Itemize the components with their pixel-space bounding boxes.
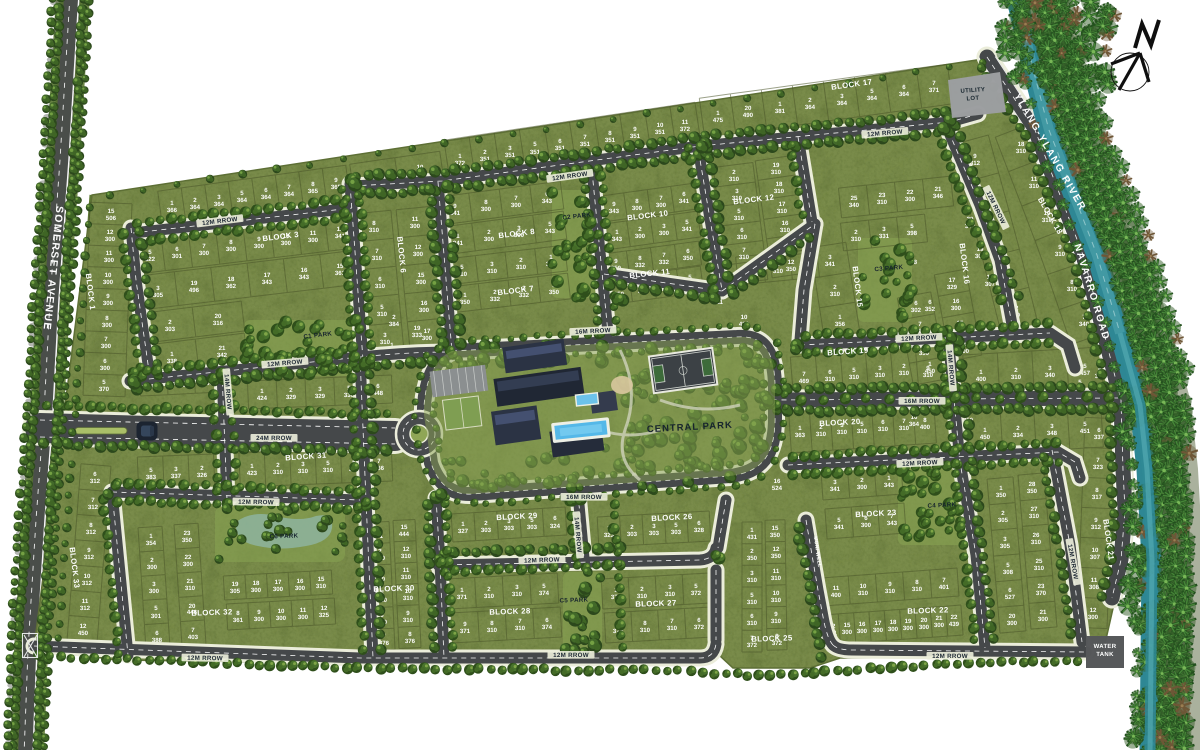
- svg-text:352: 352: [925, 306, 936, 313]
- svg-text:19: 19: [191, 280, 198, 287]
- svg-text:17: 17: [275, 579, 282, 586]
- svg-text:11: 11: [412, 216, 419, 223]
- svg-text:23: 23: [1038, 583, 1045, 590]
- svg-text:310: 310: [512, 591, 523, 598]
- svg-text:350: 350: [549, 289, 560, 296]
- svg-text:11: 11: [403, 567, 410, 574]
- svg-text:310: 310: [323, 467, 334, 474]
- svg-text:527: 527: [1005, 594, 1016, 601]
- svg-text:20: 20: [921, 617, 928, 624]
- svg-text:303: 303: [671, 529, 682, 536]
- svg-text:17: 17: [875, 620, 882, 627]
- svg-text:310: 310: [1031, 539, 1042, 546]
- svg-text:310: 310: [825, 376, 836, 383]
- svg-text:310: 310: [875, 372, 886, 379]
- svg-text:11: 11: [682, 119, 689, 126]
- svg-text:343: 343: [262, 279, 273, 286]
- svg-text:15: 15: [318, 576, 325, 583]
- svg-text:16: 16: [421, 300, 428, 307]
- svg-text:310: 310: [375, 283, 386, 290]
- svg-text:310: 310: [516, 264, 527, 271]
- svg-text:310: 310: [369, 227, 380, 234]
- svg-text:475: 475: [713, 117, 724, 124]
- svg-text:300: 300: [281, 240, 292, 247]
- svg-text:21: 21: [1040, 609, 1047, 616]
- svg-text:310: 310: [851, 236, 862, 243]
- svg-text:12: 12: [107, 229, 114, 236]
- svg-text:22: 22: [185, 554, 192, 561]
- svg-text:BLOCK 25: BLOCK 25: [751, 633, 793, 643]
- svg-text:12M RROW: 12M RROW: [553, 652, 589, 659]
- svg-text:11: 11: [833, 585, 840, 592]
- svg-text:BLOCK 27: BLOCK 27: [635, 598, 677, 608]
- svg-text:20: 20: [215, 313, 222, 320]
- svg-text:312: 312: [86, 529, 97, 536]
- svg-text:300: 300: [903, 625, 914, 632]
- svg-text:303: 303: [481, 527, 492, 534]
- svg-text:401: 401: [939, 584, 950, 591]
- svg-text:376: 376: [405, 638, 416, 645]
- svg-text:300: 300: [295, 585, 306, 592]
- svg-text:337: 337: [1094, 434, 1105, 441]
- svg-text:300: 300: [199, 250, 210, 257]
- svg-text:332: 332: [659, 259, 670, 266]
- svg-text:300: 300: [183, 561, 194, 568]
- svg-text:300: 300: [102, 322, 113, 329]
- svg-text:21: 21: [935, 186, 942, 193]
- svg-text:15: 15: [108, 208, 115, 215]
- svg-text:371: 371: [457, 594, 468, 601]
- svg-text:317: 317: [1092, 494, 1103, 501]
- svg-text:310: 310: [877, 199, 888, 206]
- svg-text:356: 356: [835, 321, 846, 328]
- svg-text:354: 354: [146, 540, 157, 547]
- svg-text:300: 300: [873, 627, 884, 634]
- svg-text:12M RROW: 12M RROW: [238, 499, 274, 507]
- svg-text:364: 364: [261, 194, 272, 201]
- svg-text:310: 310: [1011, 374, 1022, 381]
- svg-text:374: 374: [542, 624, 553, 631]
- svg-text:10: 10: [84, 573, 91, 580]
- svg-text:303: 303: [165, 326, 176, 333]
- svg-text:300: 300: [413, 251, 424, 258]
- svg-text:364: 364: [237, 197, 248, 204]
- svg-text:469: 469: [799, 378, 810, 385]
- svg-text:310: 310: [747, 620, 758, 627]
- svg-text:300: 300: [1007, 620, 1018, 627]
- svg-text:325: 325: [319, 612, 330, 619]
- svg-text:300: 300: [103, 279, 114, 286]
- svg-text:17: 17: [424, 328, 431, 335]
- svg-text:450: 450: [925, 368, 936, 375]
- svg-text:12: 12: [1090, 607, 1097, 614]
- svg-text:400: 400: [831, 592, 842, 599]
- svg-text:16: 16: [301, 267, 308, 274]
- svg-text:310: 310: [487, 268, 498, 275]
- svg-text:343: 343: [545, 228, 556, 235]
- svg-text:310: 310: [273, 469, 284, 476]
- svg-text:310: 310: [185, 585, 196, 592]
- svg-text:23: 23: [879, 192, 886, 199]
- svg-text:18: 18: [228, 276, 235, 283]
- svg-text:329: 329: [947, 284, 958, 291]
- svg-text:364: 364: [909, 421, 920, 428]
- svg-text:364: 364: [284, 191, 295, 198]
- svg-text:15: 15: [401, 524, 408, 531]
- svg-text:LOT: LOT: [966, 95, 979, 103]
- svg-text:300: 300: [104, 257, 115, 264]
- svg-text:300: 300: [1088, 614, 1099, 621]
- svg-text:310: 310: [771, 618, 782, 625]
- svg-text:316: 316: [213, 320, 224, 327]
- svg-text:364: 364: [899, 91, 910, 98]
- svg-text:350: 350: [770, 532, 781, 539]
- svg-text:10: 10: [1092, 547, 1099, 554]
- svg-text:310: 310: [899, 370, 910, 377]
- svg-text:20: 20: [745, 105, 752, 112]
- svg-text:BLOCK 28: BLOCK 28: [489, 606, 531, 616]
- svg-text:24M RROW: 24M RROW: [256, 435, 292, 442]
- svg-text:312: 312: [80, 605, 91, 612]
- svg-text:12: 12: [788, 259, 795, 266]
- svg-text:329: 329: [315, 393, 326, 400]
- svg-text:12M RROW: 12M RROW: [524, 556, 560, 564]
- svg-text:300: 300: [416, 279, 427, 286]
- svg-text:11: 11: [300, 607, 307, 614]
- svg-text:21: 21: [936, 615, 943, 622]
- svg-text:27: 27: [1031, 506, 1038, 513]
- svg-text:310: 310: [858, 590, 869, 597]
- svg-text:28: 28: [1029, 481, 1036, 488]
- svg-text:26: 26: [1033, 532, 1040, 539]
- svg-text:BLOCK 32: BLOCK 32: [191, 607, 233, 617]
- svg-text:310: 310: [830, 291, 841, 298]
- svg-text:340: 340: [849, 202, 860, 209]
- svg-text:300: 300: [919, 624, 930, 631]
- svg-text:326: 326: [197, 472, 208, 479]
- svg-text:348: 348: [1047, 430, 1058, 437]
- svg-text:439: 439: [949, 621, 960, 628]
- svg-text:312: 312: [88, 504, 99, 511]
- svg-text:343: 343: [542, 198, 553, 205]
- svg-text:300: 300: [888, 626, 899, 633]
- svg-text:346: 346: [933, 193, 944, 200]
- svg-text:351: 351: [580, 141, 591, 148]
- svg-text:451: 451: [1080, 428, 1091, 435]
- svg-text:350: 350: [996, 492, 1007, 499]
- svg-text:17: 17: [779, 201, 786, 208]
- svg-text:300: 300: [410, 223, 421, 230]
- svg-text:11: 11: [82, 598, 89, 605]
- svg-text:310: 310: [878, 426, 889, 433]
- svg-text:310: 310: [403, 595, 414, 602]
- svg-text:384: 384: [389, 321, 400, 328]
- svg-text:350: 350: [460, 299, 471, 306]
- svg-text:302: 302: [911, 307, 922, 314]
- svg-text:300: 300: [422, 335, 433, 342]
- svg-text:363: 363: [795, 432, 806, 439]
- svg-text:11: 11: [106, 250, 113, 257]
- svg-text:350: 350: [771, 553, 782, 560]
- svg-text:341: 341: [679, 198, 690, 205]
- svg-text:310: 310: [912, 586, 923, 593]
- svg-text:300: 300: [1038, 616, 1049, 623]
- svg-text:333: 333: [412, 332, 423, 339]
- svg-text:16: 16: [859, 621, 866, 628]
- svg-text:C6 PARK: C6 PARK: [269, 532, 298, 540]
- svg-text:312: 312: [82, 580, 93, 587]
- svg-text:300: 300: [484, 236, 495, 243]
- svg-text:11: 11: [1091, 577, 1098, 584]
- svg-text:300: 300: [101, 343, 112, 350]
- svg-text:20: 20: [1009, 613, 1016, 620]
- svg-text:327: 327: [458, 528, 469, 535]
- svg-text:371: 371: [929, 87, 940, 94]
- svg-text:22: 22: [951, 614, 958, 621]
- svg-text:450: 450: [78, 630, 89, 637]
- svg-text:307: 307: [1090, 554, 1101, 561]
- svg-text:16: 16: [297, 578, 304, 585]
- svg-text:310: 310: [849, 374, 860, 381]
- svg-text:371: 371: [460, 628, 471, 635]
- svg-text:300: 300: [103, 300, 114, 307]
- svg-text:332: 332: [635, 262, 646, 269]
- svg-text:398: 398: [907, 230, 918, 237]
- svg-text:300: 300: [861, 522, 872, 529]
- svg-text:22: 22: [907, 189, 914, 196]
- svg-text:310: 310: [1029, 513, 1040, 520]
- svg-text:TANK: TANK: [1096, 651, 1114, 658]
- svg-text:341: 341: [834, 524, 845, 531]
- svg-text:12: 12: [415, 244, 422, 251]
- svg-text:310: 310: [1055, 251, 1066, 258]
- svg-text:25: 25: [851, 195, 858, 202]
- svg-text:310: 310: [403, 617, 414, 624]
- svg-text:310: 310: [729, 176, 740, 183]
- svg-text:BLOCK 30: BLOCK 30: [373, 583, 415, 593]
- svg-text:300: 300: [100, 365, 111, 372]
- svg-text:300: 300: [511, 202, 522, 209]
- svg-text:300: 300: [273, 586, 284, 593]
- svg-text:351: 351: [505, 152, 516, 159]
- svg-text:310: 310: [1034, 565, 1045, 572]
- svg-text:12: 12: [773, 546, 780, 553]
- svg-text:303: 303: [504, 525, 515, 532]
- svg-text:300: 300: [857, 484, 868, 491]
- svg-text:310: 310: [885, 588, 896, 595]
- svg-text:10: 10: [773, 590, 780, 597]
- svg-text:300: 300: [298, 614, 309, 621]
- svg-text:340: 340: [1045, 372, 1056, 379]
- svg-text:303: 303: [627, 531, 638, 538]
- svg-text:364: 364: [805, 104, 816, 111]
- svg-text:300: 300: [276, 615, 287, 622]
- svg-text:444: 444: [399, 531, 410, 538]
- svg-text:370: 370: [1036, 590, 1047, 597]
- svg-text:310: 310: [665, 591, 676, 598]
- svg-text:305: 305: [230, 588, 241, 595]
- svg-text:18: 18: [776, 181, 783, 188]
- svg-text:300: 300: [149, 588, 160, 595]
- svg-text:16: 16: [953, 298, 960, 305]
- svg-text:10: 10: [278, 608, 285, 615]
- svg-text:350: 350: [1027, 488, 1038, 495]
- svg-text:310: 310: [857, 428, 868, 435]
- svg-text:341: 341: [825, 261, 836, 268]
- svg-text:300: 300: [147, 564, 158, 571]
- svg-text:305: 305: [153, 292, 164, 299]
- svg-text:15: 15: [418, 272, 425, 279]
- svg-text:10: 10: [657, 122, 664, 129]
- svg-text:19: 19: [905, 618, 912, 625]
- svg-text:365: 365: [308, 188, 319, 195]
- svg-text:364: 364: [190, 204, 201, 211]
- svg-text:300: 300: [842, 629, 853, 636]
- svg-text:490: 490: [743, 112, 754, 119]
- svg-text:450: 450: [980, 434, 991, 441]
- svg-text:300: 300: [226, 246, 237, 253]
- svg-text:350: 350: [683, 255, 694, 262]
- svg-text:364: 364: [214, 201, 225, 208]
- svg-text:310: 310: [401, 574, 412, 581]
- svg-text:341: 341: [682, 226, 693, 233]
- svg-text:11: 11: [310, 230, 317, 237]
- svg-text:300: 300: [251, 587, 262, 594]
- svg-text:308: 308: [1003, 569, 1014, 576]
- svg-text:431: 431: [747, 534, 758, 541]
- svg-text:300: 300: [105, 236, 116, 243]
- svg-text:343: 343: [609, 208, 620, 215]
- svg-text:372: 372: [694, 624, 705, 631]
- svg-text:310: 310: [640, 627, 651, 634]
- svg-text:310: 310: [737, 234, 748, 241]
- svg-text:403: 403: [188, 634, 199, 641]
- svg-text:381: 381: [775, 108, 786, 115]
- svg-text:23: 23: [184, 530, 191, 537]
- svg-text:334: 334: [1013, 432, 1024, 439]
- svg-text:300: 300: [905, 196, 916, 203]
- svg-text:300: 300: [951, 305, 962, 312]
- svg-text:310: 310: [771, 169, 782, 176]
- svg-text:300: 300: [254, 243, 265, 250]
- svg-text:351: 351: [605, 137, 616, 144]
- svg-text:310: 310: [372, 255, 383, 262]
- svg-text:BLOCK 22: BLOCK 22: [907, 605, 949, 615]
- svg-text:305: 305: [998, 517, 1009, 524]
- svg-text:305: 305: [1000, 543, 1011, 550]
- svg-text:310: 310: [777, 208, 788, 215]
- svg-text:17: 17: [264, 272, 271, 279]
- svg-text:310: 310: [739, 254, 750, 261]
- svg-text:12M RROW: 12M RROW: [187, 655, 223, 663]
- svg-text:312: 312: [1091, 524, 1102, 531]
- svg-text:370: 370: [99, 386, 110, 393]
- svg-text:12: 12: [321, 605, 328, 612]
- svg-text:310: 310: [667, 625, 678, 632]
- svg-text:350: 350: [747, 555, 758, 562]
- svg-text:310: 310: [484, 593, 495, 600]
- svg-text:16: 16: [782, 220, 789, 227]
- svg-text:400: 400: [920, 424, 931, 431]
- svg-text:310: 310: [401, 553, 412, 560]
- svg-text:C5 PARK: C5 PARK: [559, 596, 588, 604]
- svg-text:323: 323: [1093, 464, 1104, 471]
- svg-text:310: 310: [1029, 183, 1040, 190]
- svg-text:310: 310: [774, 188, 785, 195]
- svg-text:15: 15: [844, 622, 851, 629]
- svg-text:300: 300: [254, 616, 265, 623]
- svg-text:310: 310: [771, 597, 782, 604]
- svg-text:300: 300: [481, 206, 492, 213]
- svg-text:300: 300: [934, 622, 945, 629]
- svg-text:310: 310: [377, 311, 388, 318]
- svg-text:364: 364: [837, 100, 848, 107]
- svg-text:312: 312: [90, 478, 101, 485]
- svg-text:WATER: WATER: [1094, 643, 1117, 650]
- svg-text:372: 372: [680, 126, 691, 133]
- svg-text:343: 343: [299, 274, 310, 281]
- svg-text:303: 303: [649, 530, 660, 537]
- svg-text:423: 423: [247, 470, 258, 477]
- svg-text:364: 364: [867, 95, 878, 102]
- svg-text:18: 18: [1018, 141, 1025, 148]
- svg-text:496: 496: [189, 287, 200, 294]
- svg-text:300: 300: [308, 237, 319, 244]
- svg-text:524: 524: [772, 485, 783, 492]
- svg-text:301: 301: [151, 613, 162, 620]
- svg-text:308: 308: [1089, 584, 1100, 591]
- svg-text:310: 310: [515, 625, 526, 632]
- svg-text:18: 18: [253, 580, 260, 587]
- svg-text:341: 341: [830, 486, 841, 493]
- svg-text:331: 331: [879, 233, 890, 240]
- svg-text:17: 17: [949, 277, 956, 284]
- svg-text:303: 303: [527, 524, 538, 531]
- svg-text:310: 310: [747, 599, 758, 606]
- svg-text:310: 310: [1016, 148, 1027, 155]
- svg-text:351: 351: [630, 133, 641, 140]
- svg-text:343: 343: [884, 482, 895, 489]
- svg-text:351: 351: [655, 129, 666, 136]
- svg-text:329: 329: [286, 394, 297, 401]
- svg-text:300: 300: [419, 307, 430, 314]
- svg-text:310: 310: [734, 215, 745, 222]
- svg-text:21: 21: [187, 578, 194, 585]
- svg-text:506: 506: [106, 215, 117, 222]
- svg-text:310: 310: [316, 583, 327, 590]
- svg-text:372: 372: [691, 590, 702, 597]
- svg-text:343: 343: [887, 520, 898, 527]
- svg-text:400: 400: [976, 376, 987, 383]
- svg-text:328: 328: [694, 527, 705, 534]
- svg-text:310: 310: [816, 431, 827, 438]
- svg-text:300: 300: [635, 233, 646, 240]
- svg-text:12: 12: [80, 623, 87, 630]
- svg-text:16M RROW: 16M RROW: [904, 398, 940, 405]
- svg-text:12M RROW: 12M RROW: [932, 653, 968, 660]
- svg-text:15: 15: [772, 525, 779, 532]
- svg-text:374: 374: [539, 590, 550, 597]
- svg-text:18: 18: [890, 619, 897, 626]
- svg-text:337: 337: [171, 473, 182, 480]
- svg-text:343: 343: [612, 236, 623, 243]
- svg-text:312: 312: [84, 554, 95, 561]
- svg-text:310: 310: [487, 627, 498, 634]
- svg-text:10: 10: [860, 583, 867, 590]
- svg-text:424: 424: [257, 395, 268, 402]
- svg-text:300: 300: [857, 628, 868, 635]
- svg-text:350: 350: [182, 537, 193, 544]
